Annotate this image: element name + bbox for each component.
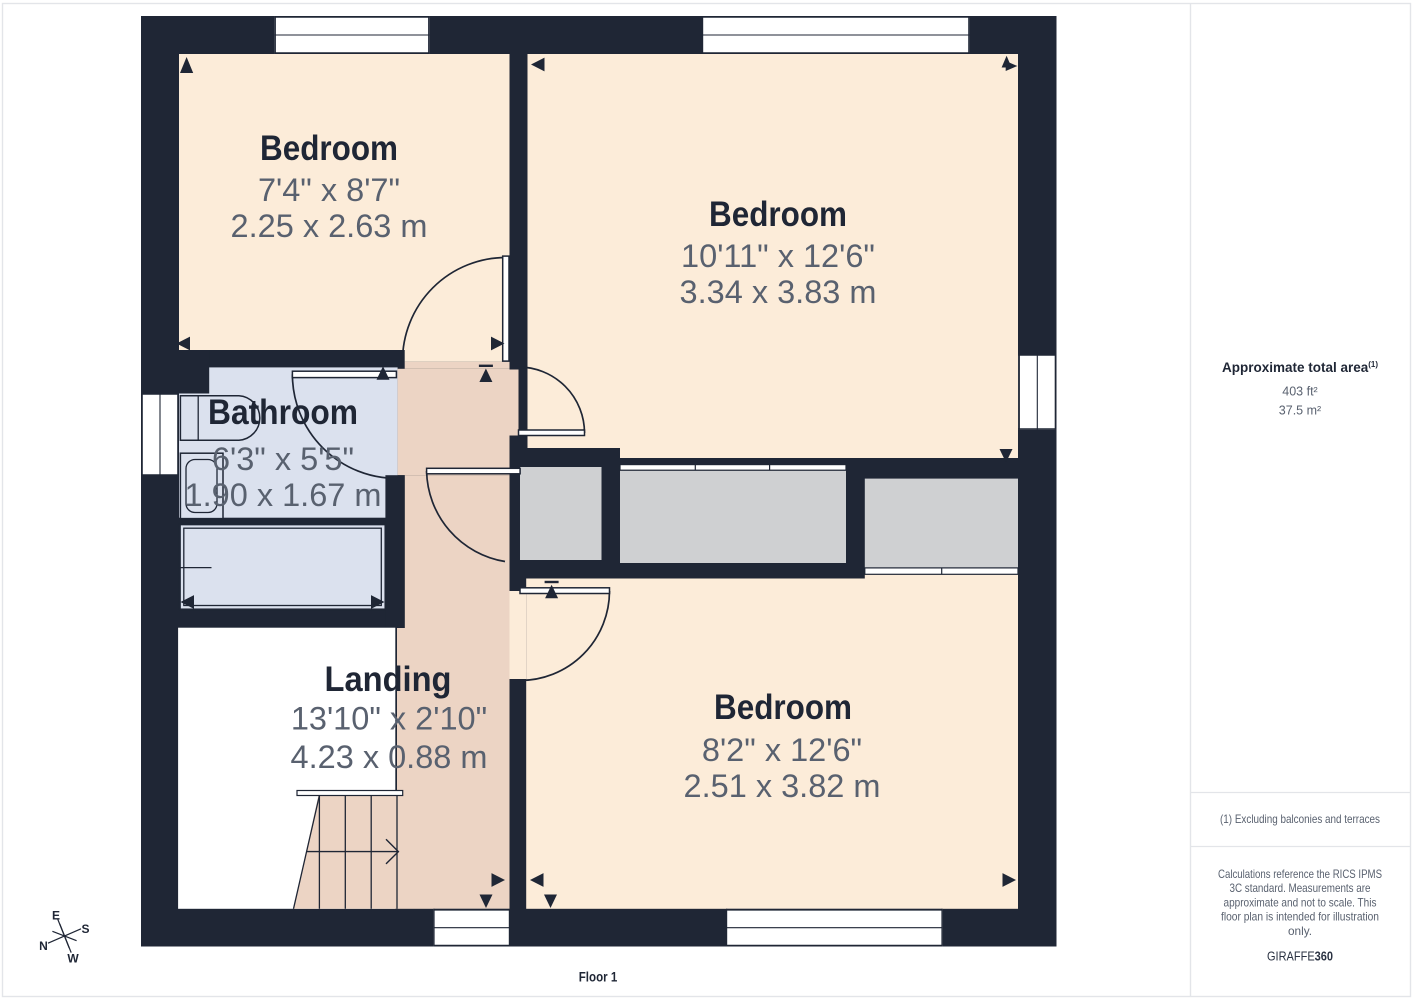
svg-text:Approximate total area(1): Approximate total area(1) [1222, 360, 1378, 375]
svg-text:Floor 1: Floor 1 [579, 969, 618, 985]
svg-text:E: E [52, 909, 60, 923]
svg-text:approximate and not to scale.: approximate and not to scale. This [1224, 895, 1377, 909]
svg-text:403 ft²: 403 ft² [1282, 385, 1317, 399]
svg-text:Bedroom: Bedroom [709, 194, 847, 234]
svg-text:Bathroom: Bathroom [208, 392, 358, 432]
svg-text:floor plan is intended for ill: floor plan is intended for illustration [1221, 910, 1379, 924]
svg-text:GIRAFFE360: GIRAFFE360 [1267, 950, 1333, 964]
svg-text:10'11" x 12'6": 10'11" x 12'6" [681, 238, 875, 274]
svg-text:6'3" x 5'5": 6'3" x 5'5" [212, 441, 354, 477]
svg-text:7'4" x 8'7": 7'4" x 8'7" [258, 172, 400, 208]
svg-text:Landing: Landing [325, 659, 452, 699]
svg-text:Bedroom: Bedroom [714, 687, 852, 727]
svg-text:1.90 x 1.67 m: 1.90 x 1.67 m [185, 477, 382, 513]
svg-text:37.5 m²: 37.5 m² [1279, 404, 1321, 418]
svg-text:W: W [67, 952, 79, 966]
svg-text:S: S [81, 922, 89, 936]
svg-text:3.34 x 3.83 m: 3.34 x 3.83 m [680, 274, 877, 310]
svg-text:3C standard. Measurements are: 3C standard. Measurements are [1230, 881, 1371, 895]
svg-text:N: N [39, 939, 48, 953]
svg-text:(1) Excluding balconies and te: (1) Excluding balconies and terraces [1220, 812, 1380, 826]
svg-text:Calculations reference the RIC: Calculations reference the RICS IPMS [1218, 867, 1382, 881]
svg-text:8'2" x 12'6": 8'2" x 12'6" [702, 732, 862, 768]
svg-text:2.51 x 3.82 m: 2.51 x 3.82 m [684, 768, 881, 804]
svg-text:only.: only. [1288, 924, 1312, 938]
svg-text:Bedroom: Bedroom [260, 128, 398, 168]
svg-text:13'10" x 2'10": 13'10" x 2'10" [291, 701, 487, 737]
svg-text:4.23 x 0.88 m: 4.23 x 0.88 m [291, 739, 488, 775]
svg-text:2.25 x 2.63 m: 2.25 x 2.63 m [231, 208, 428, 244]
